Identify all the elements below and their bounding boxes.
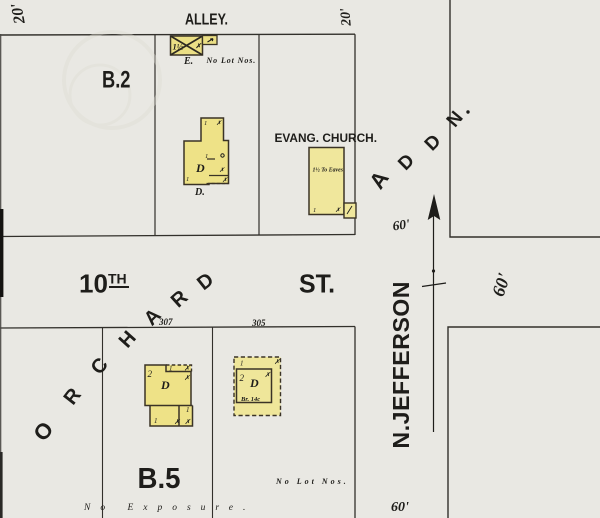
- svg-text:ST.: ST.: [299, 269, 335, 299]
- svg-text:307: 307: [158, 317, 173, 327]
- svg-text:1: 1: [313, 207, 316, 214]
- svg-text:1: 1: [186, 406, 190, 414]
- svg-text:✗: ✗: [219, 167, 225, 174]
- svg-text:Br. 14c: Br. 14c: [240, 396, 260, 403]
- svg-text:No Lot Nos.: No Lot Nos.: [206, 56, 257, 65]
- svg-text:No Exposure.: No Exposure.: [83, 503, 255, 513]
- svg-text:1½: 1½: [173, 42, 184, 52]
- svg-text:10: 10: [79, 269, 108, 299]
- svg-text:EVANG. CHURCH.: EVANG. CHURCH.: [275, 131, 378, 145]
- svg-text:D: D: [195, 161, 205, 175]
- svg-text:B.5: B.5: [138, 463, 181, 495]
- svg-text:D: D: [160, 378, 170, 392]
- svg-text:B.2: B.2: [102, 67, 131, 94]
- svg-text:1: 1: [240, 360, 244, 368]
- svg-text:✗: ✗: [335, 207, 341, 214]
- svg-text:305: 305: [251, 318, 266, 328]
- svg-text:1: 1: [186, 176, 189, 183]
- svg-text:No Lot Nos.: No Lot Nos.: [275, 477, 349, 486]
- svg-text:20': 20': [338, 7, 355, 27]
- svg-text:D: D: [249, 376, 259, 390]
- svg-text:60': 60': [392, 216, 411, 233]
- svg-text:TH: TH: [108, 271, 127, 287]
- svg-text:N.JEFFERSON: N.JEFFERSON: [388, 282, 414, 449]
- svg-text:D.: D.: [194, 187, 205, 198]
- svg-text:60': 60': [391, 500, 409, 515]
- svg-text:E.: E.: [183, 56, 193, 67]
- svg-text:1: 1: [169, 365, 173, 373]
- svg-text:1: 1: [204, 120, 207, 127]
- svg-text:✗: ✗: [196, 43, 202, 50]
- svg-text:1½ To Eaves: 1½ To Eaves: [313, 167, 344, 174]
- svg-text:2: 2: [148, 369, 153, 379]
- svg-text:1: 1: [154, 417, 158, 425]
- svg-text:2: 2: [240, 373, 245, 383]
- svg-text:✗: ✗: [216, 120, 222, 127]
- svg-text:1: 1: [205, 153, 208, 160]
- svg-text:✗: ✗: [222, 177, 228, 184]
- svg-text:ALLEY.: ALLEY.: [185, 12, 228, 29]
